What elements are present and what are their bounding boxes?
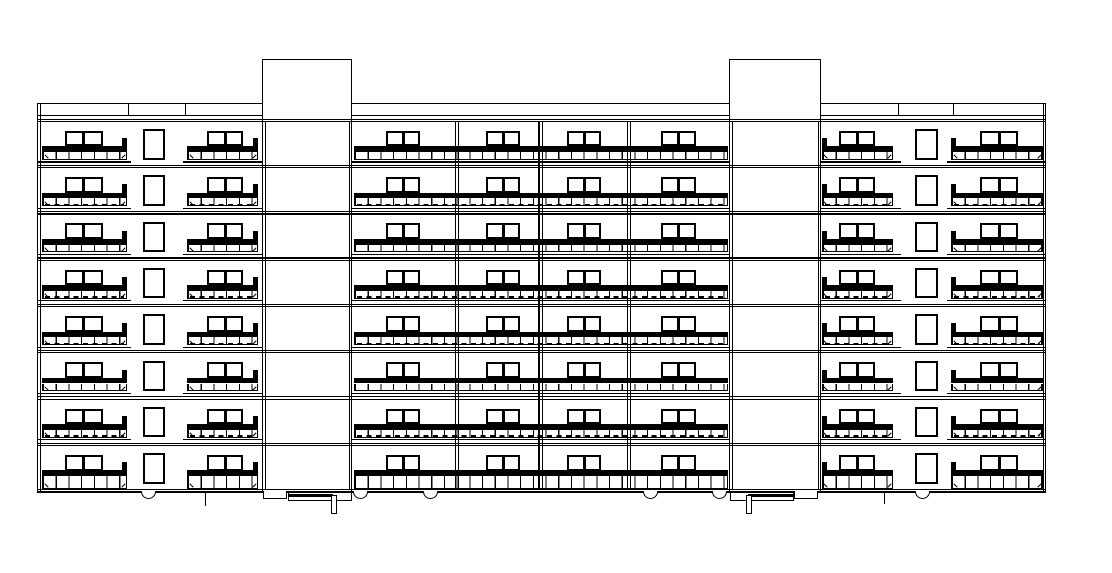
balcony-end-stub — [951, 277, 956, 286]
parapet-band-top-line — [821, 103, 1046, 104]
balcony-end-stub — [951, 138, 956, 147]
casement-window — [567, 131, 601, 147]
window-mullion — [856, 318, 859, 330]
balcony-end-stub — [122, 416, 127, 425]
balcony-slab-lip — [821, 161, 901, 162]
balcony-railing — [187, 476, 258, 489]
rail-threshold-dashes — [190, 296, 255, 298]
window-mullion — [402, 457, 405, 469]
balcony-slab-lip — [947, 347, 1046, 348]
stair-window — [915, 268, 938, 299]
rail-threshold-dashes — [954, 296, 1040, 298]
foundation-vent — [141, 491, 156, 499]
balcony-end-stub — [822, 370, 827, 379]
balcony-end-stub — [951, 323, 956, 332]
casement-window — [207, 409, 243, 425]
balcony-slab-lip — [183, 161, 263, 162]
floor-slab-line — [37, 119, 1046, 120]
balcony-slab-lip — [352, 439, 730, 440]
casement-window — [207, 455, 243, 471]
window-mullion — [224, 364, 227, 376]
window-mullion — [998, 411, 1001, 423]
ground-line — [37, 491, 1046, 492]
casement-window — [207, 223, 243, 239]
stair-window — [915, 314, 938, 345]
rail-threshold-dashes — [825, 204, 891, 206]
window-mullion — [502, 411, 505, 423]
window-mullion — [224, 272, 227, 284]
balcony-end-stub — [253, 416, 258, 425]
balcony-end-stub — [822, 416, 827, 425]
casement-window — [386, 177, 420, 193]
rail-threshold-dashes — [357, 296, 725, 298]
casement-window — [207, 177, 243, 193]
window-mullion — [677, 364, 680, 376]
stair-window — [915, 175, 938, 206]
window-mullion — [998, 364, 1001, 376]
rail-threshold-dashes — [45, 204, 124, 206]
foundation-vent — [423, 491, 438, 499]
casement-window — [839, 223, 875, 239]
window-mullion — [583, 133, 586, 145]
window-mullion — [856, 225, 859, 237]
balcony-end-stub — [122, 462, 127, 471]
window-mullion — [502, 225, 505, 237]
casement-window — [839, 177, 875, 193]
window-mullion — [856, 364, 859, 376]
balcony-end-stub — [253, 370, 258, 379]
balcony-end-stub — [122, 231, 127, 240]
balcony-slab-lip — [352, 208, 730, 209]
balcony-slab-lip — [37, 347, 131, 348]
balcony-slab-lip — [947, 439, 1046, 440]
casement-window — [980, 177, 1018, 193]
balcony-end-stub — [253, 184, 258, 193]
casement-window — [661, 455, 696, 471]
casement-window — [65, 270, 103, 286]
casement-window — [386, 409, 420, 425]
casement-window — [661, 409, 696, 425]
canopy-post — [331, 495, 337, 514]
casement-window — [65, 177, 103, 193]
casement-window — [386, 455, 420, 471]
stair-window — [915, 222, 938, 253]
window-mullion — [502, 133, 505, 145]
balcony-railing — [42, 476, 127, 489]
casement-window — [65, 131, 103, 147]
balcony-railing — [951, 384, 1043, 392]
casement-window — [386, 223, 420, 239]
balcony-slab-lip — [183, 254, 263, 255]
balcony-slab-lip — [947, 254, 1046, 255]
window-mullion — [224, 411, 227, 423]
balcony-end-stub — [951, 184, 956, 193]
window-mullion — [402, 364, 405, 376]
balcony-slab-lip — [37, 254, 131, 255]
balcony-slab-lip — [183, 393, 263, 394]
canopy-fascia — [748, 494, 793, 497]
casement-window — [839, 362, 875, 378]
balcony-railing — [187, 245, 258, 253]
tower-edge — [351, 59, 352, 491]
balcony-slab-lip — [183, 347, 263, 348]
balcony-end-stub — [951, 462, 956, 471]
balcony-railing — [187, 384, 258, 392]
casement-window — [839, 409, 875, 425]
balcony-end-stub — [822, 277, 827, 286]
balcony-end-stub — [122, 370, 127, 379]
balcony-slab-lip — [947, 208, 1046, 209]
balcony-end-stub — [122, 138, 127, 147]
tower-edge-inner — [732, 121, 733, 489]
stair-window — [143, 314, 165, 345]
casement-window — [567, 223, 601, 239]
window-mullion — [224, 225, 227, 237]
window-mullion — [856, 179, 859, 191]
casement-window — [980, 455, 1018, 471]
casement-window — [567, 270, 601, 286]
balcony-end-stub — [822, 462, 827, 471]
band-joint — [953, 103, 954, 116]
balcony-railing — [822, 384, 894, 392]
downspout — [205, 491, 206, 506]
rail-threshold-dashes — [954, 435, 1040, 437]
window-mullion — [82, 225, 85, 237]
tower-roof-line — [262, 59, 352, 60]
casement-window — [567, 316, 601, 332]
elevation-drawing — [0, 0, 1112, 573]
casement-window — [386, 270, 420, 286]
balcony-end-stub — [122, 323, 127, 332]
rail-threshold-dashes — [45, 343, 124, 345]
rail-threshold-dashes — [45, 435, 124, 437]
tower-edge-inner — [349, 121, 350, 489]
balcony-slab-lip — [183, 439, 263, 440]
rail-threshold-dashes — [954, 204, 1040, 206]
balcony-railing — [354, 384, 728, 392]
downspout — [884, 491, 885, 504]
window-mullion — [224, 133, 227, 145]
balcony-end-stub — [822, 138, 827, 147]
balcony-railing — [354, 476, 728, 489]
window-mullion — [402, 411, 405, 423]
ground-line — [37, 489, 1046, 490]
window-mullion — [402, 133, 405, 145]
window-mullion — [583, 225, 586, 237]
balcony-slab-lip — [352, 347, 730, 348]
foundation-vent — [643, 491, 658, 499]
window-mullion — [583, 272, 586, 284]
casement-window — [839, 270, 875, 286]
parapet-band-top-line — [37, 103, 262, 104]
stair-window — [143, 268, 165, 299]
window-mullion — [677, 318, 680, 330]
window-mullion — [82, 133, 85, 145]
window-mullion — [998, 272, 1001, 284]
window-mullion — [998, 225, 1001, 237]
casement-window — [661, 223, 696, 239]
parapet-band-mid-line — [821, 115, 1046, 116]
foundation-vent — [353, 491, 368, 499]
window-mullion — [502, 318, 505, 330]
balcony-slab-lip — [821, 347, 901, 348]
balcony-slab-lip — [352, 393, 730, 394]
rail-threshold-dashes — [45, 296, 124, 298]
balcony-slab-lip — [183, 208, 263, 209]
window-mullion — [82, 364, 85, 376]
stair-window — [915, 129, 938, 160]
window-mullion — [82, 318, 85, 330]
window-mullion — [856, 457, 859, 469]
balcony-end-stub — [253, 231, 258, 240]
casement-window — [486, 409, 520, 425]
balcony-railing — [354, 245, 728, 253]
casement-window — [661, 270, 696, 286]
casement-window — [839, 455, 875, 471]
parapet-band-mid-line — [37, 115, 262, 116]
balcony-slab-lip — [821, 393, 901, 394]
window-mullion — [82, 457, 85, 469]
casement-window — [980, 131, 1018, 147]
casement-window — [207, 270, 243, 286]
balcony-slab-lip — [821, 208, 901, 209]
stair-window — [143, 222, 165, 253]
balcony-slab-lip — [37, 161, 131, 162]
window-mullion — [82, 411, 85, 423]
balcony-end-stub — [822, 231, 827, 240]
balcony-end-stub — [822, 184, 827, 193]
casement-window — [661, 316, 696, 332]
window-mullion — [82, 179, 85, 191]
rail-threshold-dashes — [954, 343, 1040, 345]
casement-window — [839, 316, 875, 332]
window-mullion — [82, 272, 85, 284]
stair-window — [143, 453, 165, 484]
casement-window — [567, 177, 601, 193]
balcony-slab-lip — [821, 300, 901, 301]
casement-window — [661, 131, 696, 147]
entrance-step — [263, 491, 287, 499]
casement-window — [839, 131, 875, 147]
window-mullion — [677, 179, 680, 191]
window-mullion — [402, 179, 405, 191]
casement-window — [65, 316, 103, 332]
tower-edge-inner — [265, 121, 266, 489]
balcony-railing — [951, 245, 1043, 253]
balcony-slab-lip — [821, 439, 901, 440]
stair-window — [143, 175, 165, 206]
window-mullion — [402, 318, 405, 330]
casement-window — [567, 409, 601, 425]
window-mullion — [998, 133, 1001, 145]
casement-window — [567, 455, 601, 471]
casement-window — [980, 270, 1018, 286]
balcony-railing — [354, 152, 728, 160]
canopy-post — [746, 495, 752, 514]
stair-window — [915, 453, 938, 484]
band-joint — [898, 103, 899, 116]
rail-threshold-dashes — [190, 435, 255, 437]
balcony-slab-lip — [37, 300, 131, 301]
rail-threshold-dashes — [357, 204, 725, 206]
balcony-end-stub — [122, 184, 127, 193]
balcony-slab-lip — [37, 439, 131, 440]
window-mullion — [224, 318, 227, 330]
window-mullion — [856, 411, 859, 423]
rail-threshold-dashes — [825, 343, 891, 345]
balcony-railing — [42, 245, 127, 253]
window-mullion — [677, 133, 680, 145]
window-mullion — [402, 272, 405, 284]
tower-edge-inner — [818, 121, 819, 489]
casement-window — [386, 131, 420, 147]
window-mullion — [502, 179, 505, 191]
window-mullion — [583, 364, 586, 376]
window-mullion — [677, 411, 680, 423]
casement-window — [661, 177, 696, 193]
casement-window — [980, 362, 1018, 378]
balcony-railing — [822, 152, 894, 160]
window-mullion — [402, 225, 405, 237]
casement-window — [65, 362, 103, 378]
casement-window — [65, 223, 103, 239]
casement-window — [661, 362, 696, 378]
casement-window — [65, 455, 103, 471]
window-mullion — [502, 364, 505, 376]
stair-window — [915, 361, 938, 392]
balcony-end-stub — [951, 231, 956, 240]
window-mullion — [677, 457, 680, 469]
casement-window — [980, 316, 1018, 332]
window-mullion — [583, 318, 586, 330]
window-mullion — [502, 457, 505, 469]
rail-threshold-dashes — [825, 435, 891, 437]
casement-window — [207, 316, 243, 332]
rail-threshold-dashes — [190, 343, 255, 345]
window-mullion — [224, 457, 227, 469]
tower-edge — [262, 59, 263, 491]
foundation-vent — [712, 491, 727, 499]
balcony-slab-lip — [352, 300, 730, 301]
balcony-railing — [951, 476, 1043, 489]
casement-window — [980, 223, 1018, 239]
casement-window — [207, 131, 243, 147]
balcony-railing — [822, 245, 894, 253]
window-mullion — [856, 272, 859, 284]
tower-edge — [729, 59, 730, 491]
casement-window — [65, 409, 103, 425]
balcony-slab-lip — [37, 393, 131, 394]
rail-threshold-dashes — [190, 204, 255, 206]
balcony-end-stub — [253, 138, 258, 147]
balcony-end-stub — [951, 416, 956, 425]
band-joint — [185, 103, 186, 116]
balcony-railing — [42, 152, 127, 160]
balcony-slab-lip — [183, 300, 263, 301]
band-joint — [128, 103, 129, 116]
balcony-railing — [42, 384, 127, 392]
balcony-end-stub — [253, 323, 258, 332]
balcony-slab-lip — [37, 208, 131, 209]
balcony-slab-lip — [821, 254, 901, 255]
tower-roof-line — [729, 59, 821, 60]
window-mullion — [677, 225, 680, 237]
casement-window — [486, 362, 520, 378]
casement-window — [486, 270, 520, 286]
rail-threshold-dashes — [825, 296, 891, 298]
canopy-fascia — [288, 494, 333, 497]
window-mullion — [502, 272, 505, 284]
casement-window — [486, 131, 520, 147]
stair-window — [143, 407, 165, 438]
balcony-end-stub — [822, 323, 827, 332]
window-mullion — [224, 179, 227, 191]
window-mullion — [998, 457, 1001, 469]
balcony-slab-lip — [947, 300, 1046, 301]
balcony-slab-lip — [352, 254, 730, 255]
casement-window — [980, 409, 1018, 425]
balcony-end-stub — [951, 370, 956, 379]
window-mullion — [583, 411, 586, 423]
balcony-end-stub — [253, 462, 258, 471]
casement-window — [386, 316, 420, 332]
foundation-vent — [915, 491, 930, 499]
balcony-railing — [187, 152, 258, 160]
rail-threshold-dashes — [357, 435, 725, 437]
casement-window — [486, 316, 520, 332]
entrance-step — [794, 491, 818, 499]
window-mullion — [998, 179, 1001, 191]
window-mullion — [856, 133, 859, 145]
parapet-band-top-line — [352, 103, 730, 104]
window-mullion — [583, 179, 586, 191]
stair-window — [915, 407, 938, 438]
window-mullion — [677, 272, 680, 284]
parapet-band-mid-line — [352, 115, 730, 116]
casement-window — [486, 223, 520, 239]
casement-window — [207, 362, 243, 378]
casement-window — [567, 362, 601, 378]
stair-window — [143, 129, 165, 160]
casement-window — [486, 177, 520, 193]
casement-window — [486, 455, 520, 471]
balcony-railing — [951, 152, 1043, 160]
balcony-end-stub — [253, 277, 258, 286]
stair-window — [143, 361, 165, 392]
rail-threshold-dashes — [357, 343, 725, 345]
balcony-slab-lip — [947, 161, 1046, 162]
balcony-slab-lip — [947, 393, 1046, 394]
balcony-end-stub — [122, 277, 127, 286]
casement-window — [386, 362, 420, 378]
balcony-slab-lip — [352, 161, 730, 162]
balcony-railing — [822, 476, 894, 489]
window-mullion — [583, 457, 586, 469]
window-mullion — [998, 318, 1001, 330]
